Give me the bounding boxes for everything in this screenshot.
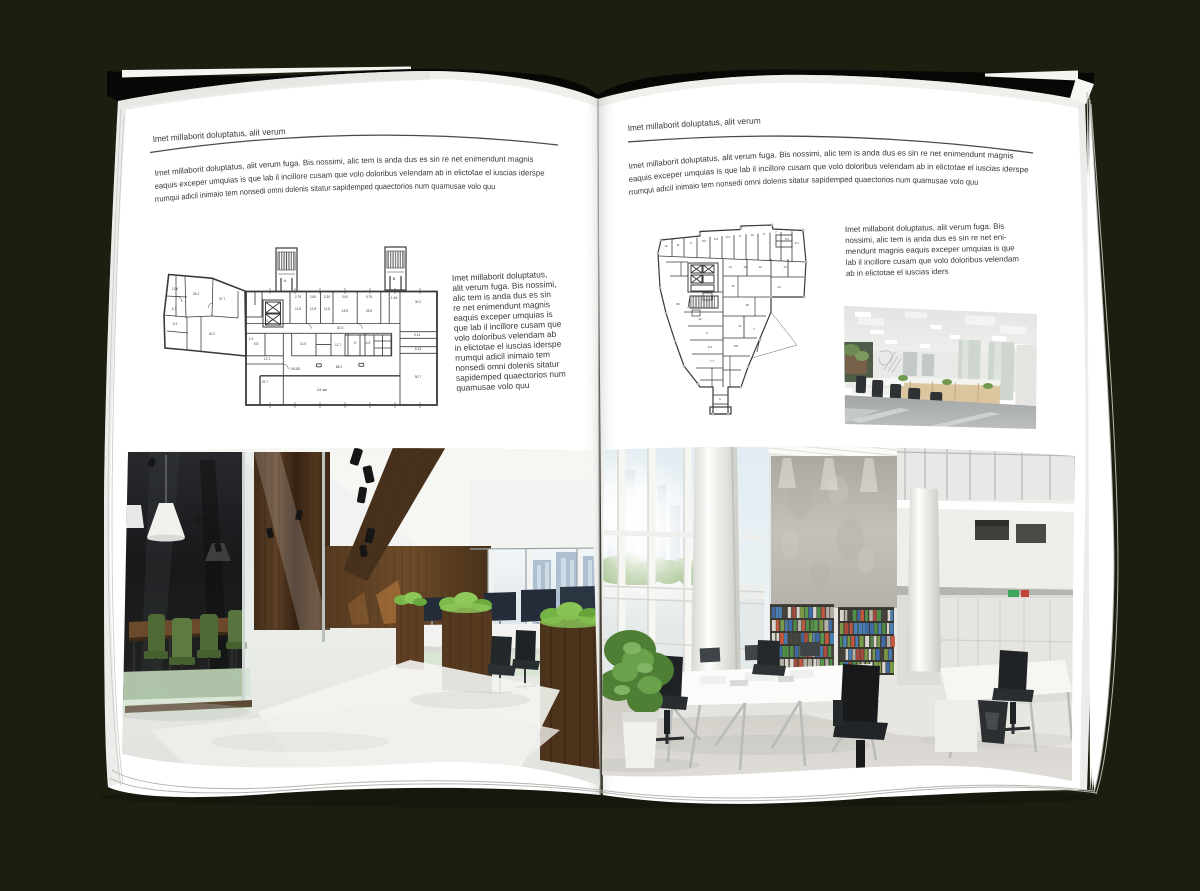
svg-text:11.8: 11.8 xyxy=(295,307,301,311)
svg-text:9.8: 9.8 xyxy=(254,342,259,346)
svg-text:10.5: 10.5 xyxy=(300,342,306,346)
svg-text:14: 14 xyxy=(728,265,732,269)
svg-text:5.14: 5.14 xyxy=(414,333,420,337)
svg-text:12.6: 12.6 xyxy=(172,287,178,291)
svg-text:5.78: 5.78 xyxy=(366,295,372,299)
svg-text:8.2: 8.2 xyxy=(714,237,719,241)
svg-text:5.2: 5.2 xyxy=(173,322,178,326)
svg-text:26.2: 26.2 xyxy=(193,292,199,296)
svg-text:8.4: 8.4 xyxy=(708,345,713,349)
svg-text:11.8: 11.8 xyxy=(324,307,330,311)
svg-text:1.45: 1.45 xyxy=(391,296,397,300)
svg-text:40.2: 40.2 xyxy=(209,332,215,336)
svg-text:30.4: 30.4 xyxy=(337,326,343,330)
svg-text:8.4: 8.4 xyxy=(726,235,731,239)
svg-text:13: 13 xyxy=(783,265,787,269)
svg-text:A: A xyxy=(284,278,287,283)
svg-text:12.1: 12.1 xyxy=(264,357,270,361)
svg-text:12: 12 xyxy=(758,265,762,269)
svg-text:2.80: 2.80 xyxy=(310,295,316,299)
svg-text:12: 12 xyxy=(698,317,702,321)
svg-text:4.7: 4.7 xyxy=(172,307,177,311)
svg-text:18: 18 xyxy=(745,303,749,307)
svg-text:11: 11 xyxy=(676,243,679,247)
svg-text:50.7: 50.7 xyxy=(415,375,421,379)
svg-text:18.5: 18.5 xyxy=(342,309,348,313)
svg-text:96: 96 xyxy=(676,302,680,306)
svg-text:28.8: 28.8 xyxy=(366,309,372,313)
svg-text:2.30: 2.30 xyxy=(324,295,330,299)
svg-text:2-й зал: 2-й зал xyxy=(317,388,328,392)
svg-text:24: 24 xyxy=(777,285,781,289)
svg-text:8.6: 8.6 xyxy=(702,239,707,243)
svg-text:5.43: 5.43 xyxy=(415,347,421,351)
svg-text:31.7: 31.7 xyxy=(262,380,268,384)
svg-text:6.1: 6.1 xyxy=(795,241,800,245)
svg-text:4.3: 4.3 xyxy=(249,337,254,341)
svg-text:30.2: 30.2 xyxy=(415,300,421,304)
svg-text:16: 16 xyxy=(743,265,747,269)
svg-text:22: 22 xyxy=(731,284,735,288)
svg-text:11.7: 11.7 xyxy=(335,343,341,347)
svg-text:5.2: 5.2 xyxy=(785,237,790,241)
svg-text:21.4: 21.4 xyxy=(265,319,271,323)
svg-text:7.7: 7.7 xyxy=(710,359,715,363)
svg-text:3.00: 3.00 xyxy=(342,295,348,299)
svg-text:17: 17 xyxy=(353,341,357,345)
svg-text:2.75: 2.75 xyxy=(295,295,301,299)
svg-text:4.5: 4.5 xyxy=(366,341,371,345)
svg-text:8.8: 8.8 xyxy=(734,344,739,348)
svg-text:11: 11 xyxy=(738,324,741,328)
svg-text:12: 12 xyxy=(664,244,668,248)
svg-text:37.7: 37.7 xyxy=(219,297,225,301)
svg-text:B: B xyxy=(393,276,396,281)
svg-text:86.3: 86.3 xyxy=(336,365,342,369)
svg-text:140.85: 140.85 xyxy=(290,367,300,371)
svg-text:12.8: 12.8 xyxy=(310,307,316,311)
svg-text:10: 10 xyxy=(750,233,754,237)
